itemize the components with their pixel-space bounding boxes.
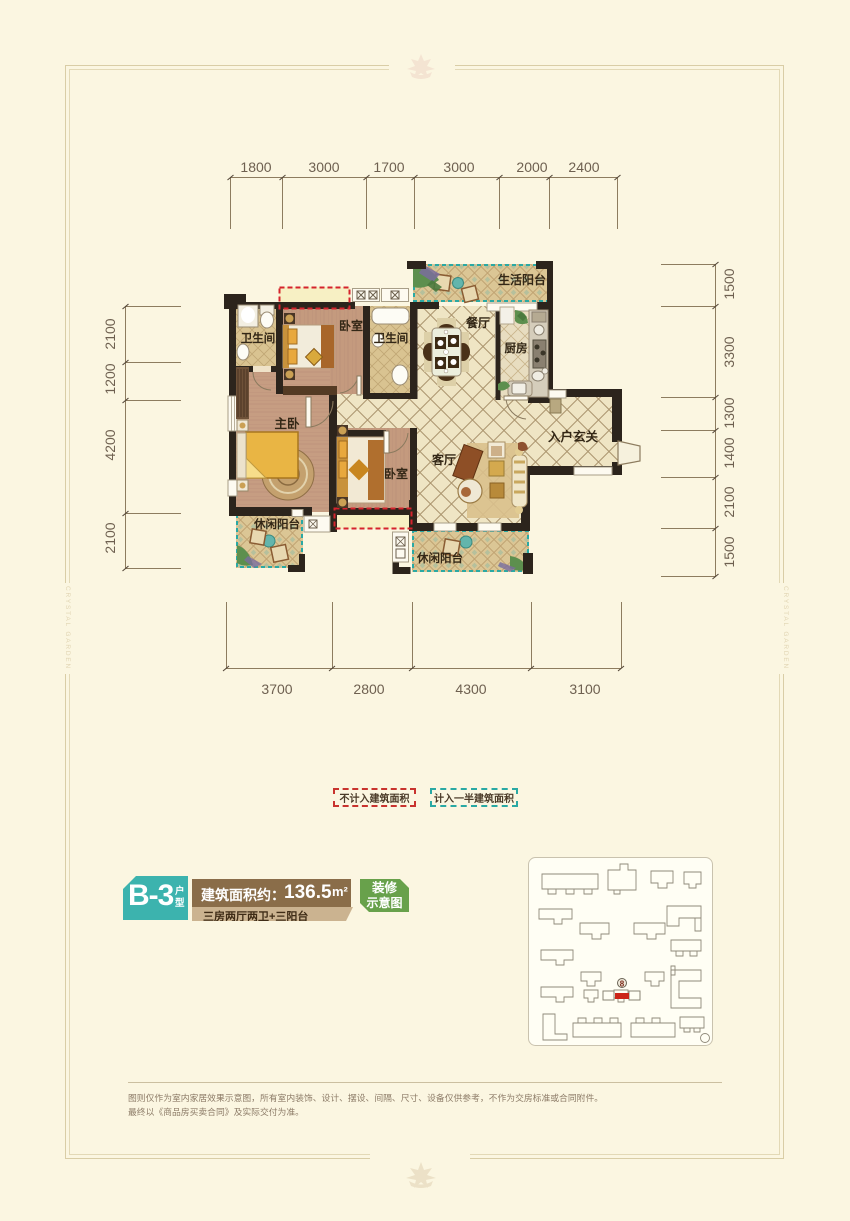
svg-text:2100: 2100	[102, 318, 118, 349]
svg-text:2400: 2400	[568, 159, 599, 175]
svg-text:3000: 3000	[443, 159, 474, 175]
svg-text:4300: 4300	[455, 681, 486, 697]
svg-text:餐厅: 餐厅	[466, 315, 490, 330]
svg-text:入户玄关: 入户玄关	[548, 429, 599, 444]
svg-text:1300: 1300	[721, 397, 737, 428]
svg-text:4200: 4200	[102, 429, 118, 460]
svg-text:3100: 3100	[569, 681, 600, 697]
svg-text:卫生间: 卫生间	[374, 331, 409, 345]
svg-text:3700: 3700	[261, 681, 292, 697]
svg-text:3300: 3300	[721, 336, 737, 367]
svg-text:1400: 1400	[721, 437, 737, 468]
svg-text:1700: 1700	[373, 159, 404, 175]
svg-text:休闲阳台: 休闲阳台	[253, 517, 300, 531]
svg-text:客厅: 客厅	[431, 452, 456, 467]
svg-text:3000: 3000	[308, 159, 339, 175]
svg-text:卧室: 卧室	[384, 466, 408, 481]
svg-text:2000: 2000	[516, 159, 547, 175]
svg-text:主卧: 主卧	[274, 416, 300, 431]
svg-text:8: 8	[620, 980, 625, 989]
svg-text:厨房: 厨房	[505, 341, 528, 355]
svg-text:1200: 1200	[102, 363, 118, 394]
svg-text:卫生间: 卫生间	[241, 331, 276, 345]
svg-text:2100: 2100	[721, 486, 737, 517]
svg-text:生活阳台: 生活阳台	[498, 272, 546, 287]
svg-text:2800: 2800	[353, 681, 384, 697]
svg-text:1500: 1500	[721, 268, 737, 299]
svg-text:1500: 1500	[721, 536, 737, 567]
svg-text:1800: 1800	[240, 159, 271, 175]
svg-text:2100: 2100	[102, 522, 118, 553]
svg-text:卧室: 卧室	[339, 318, 363, 333]
svg-text:休闲阳台: 休闲阳台	[416, 551, 463, 565]
